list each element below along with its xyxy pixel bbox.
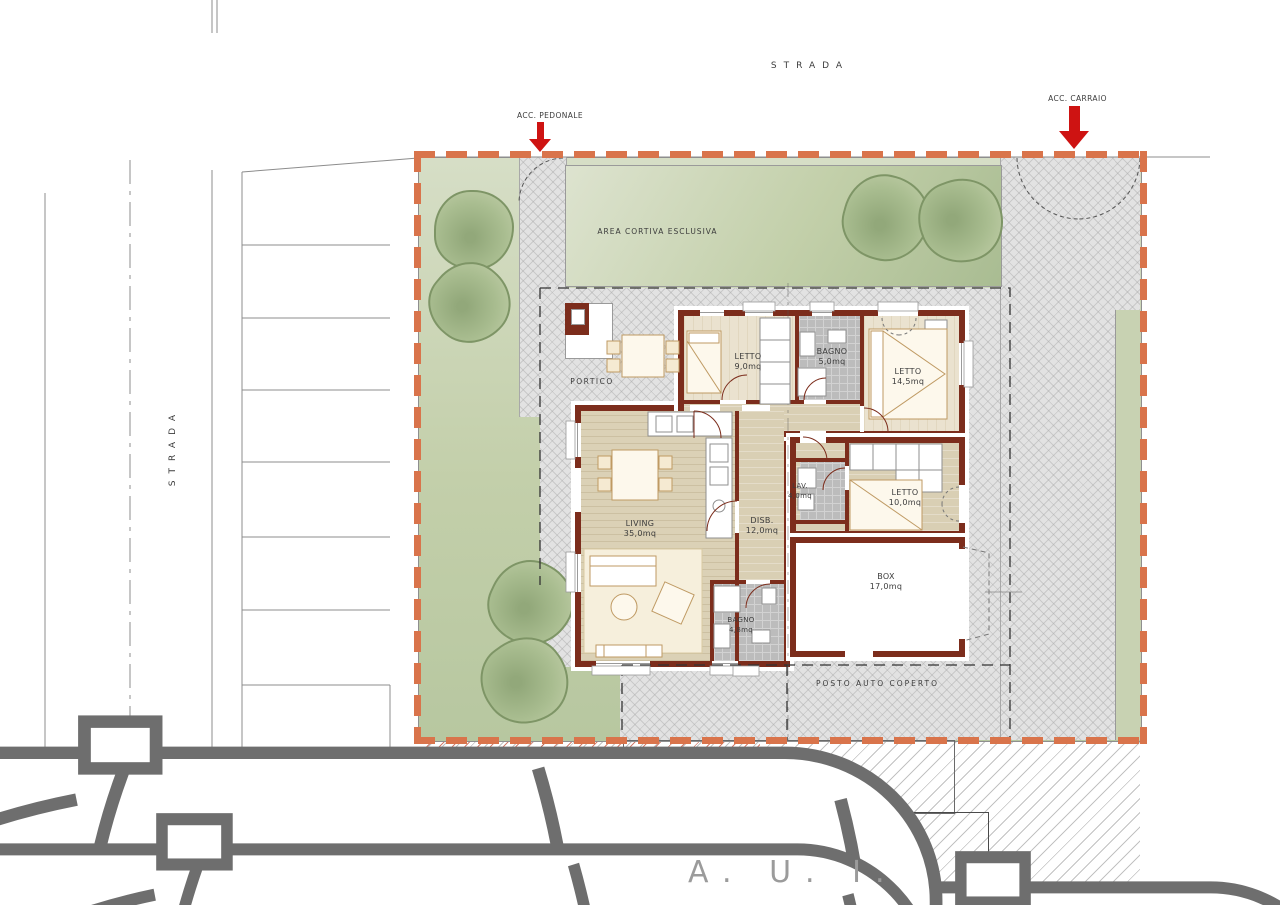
- room-label-letto10: LETTO10,0mq: [870, 488, 940, 507]
- vehicle-access-label: ACC. CARRAIO: [1035, 94, 1120, 103]
- road-label-left: STRADA: [168, 408, 178, 486]
- room-letto10-floor: [849, 443, 959, 531]
- pedestrian-access-arrowhead-icon: [529, 139, 551, 152]
- carport-projection-outline: [623, 740, 955, 814]
- vehicle-access-arrow-icon: [1069, 106, 1080, 131]
- room-label-bagno48: BAGNO4,8mq: [706, 616, 776, 635]
- gate-corner-paving: [1115, 157, 1140, 310]
- pedestrian-access-arrow-icon: [537, 122, 544, 139]
- boundary-left: [414, 151, 421, 744]
- room-label-letto145: LETTO14,5mq: [873, 367, 943, 386]
- room-box-floor: [796, 543, 959, 651]
- boundary-bottom: [414, 737, 1147, 744]
- porch-label: PORTICO: [562, 377, 622, 386]
- covered-parking-label: POSTO AUTO COPERTO: [795, 679, 960, 688]
- room-label-living: LIVING35,0mq: [605, 519, 675, 538]
- boundary-top: [414, 151, 1147, 158]
- right-green-strip: [1115, 310, 1141, 740]
- room-label-bagno5: BAGNO5,0mq: [797, 347, 867, 366]
- vehicle-access-arrowhead-icon: [1059, 131, 1089, 149]
- pedestrian-access-label: ACC. PEDONALE: [505, 111, 595, 120]
- tree-icon: [434, 190, 514, 270]
- adjacent-building-label: A. U. I.: [688, 855, 898, 890]
- boundary-right: [1140, 151, 1147, 744]
- room-label-lav: LAV.4,0mq: [765, 482, 835, 501]
- road-label-top: STRADA: [740, 61, 880, 71]
- room-label-letto9: LETTO9,0mq: [713, 352, 783, 371]
- courtyard-area-label: AREA CORTIVA ESCLUSIVA: [575, 227, 740, 236]
- room-label-disb: DISB.12,0mq: [727, 516, 797, 535]
- site-plan: A. U. I. AREA CORTIVA ESCLUSIVA: [0, 0, 1280, 905]
- driveway-paving: [1000, 157, 1116, 740]
- room-label-box: BOX17,0mq: [851, 572, 921, 591]
